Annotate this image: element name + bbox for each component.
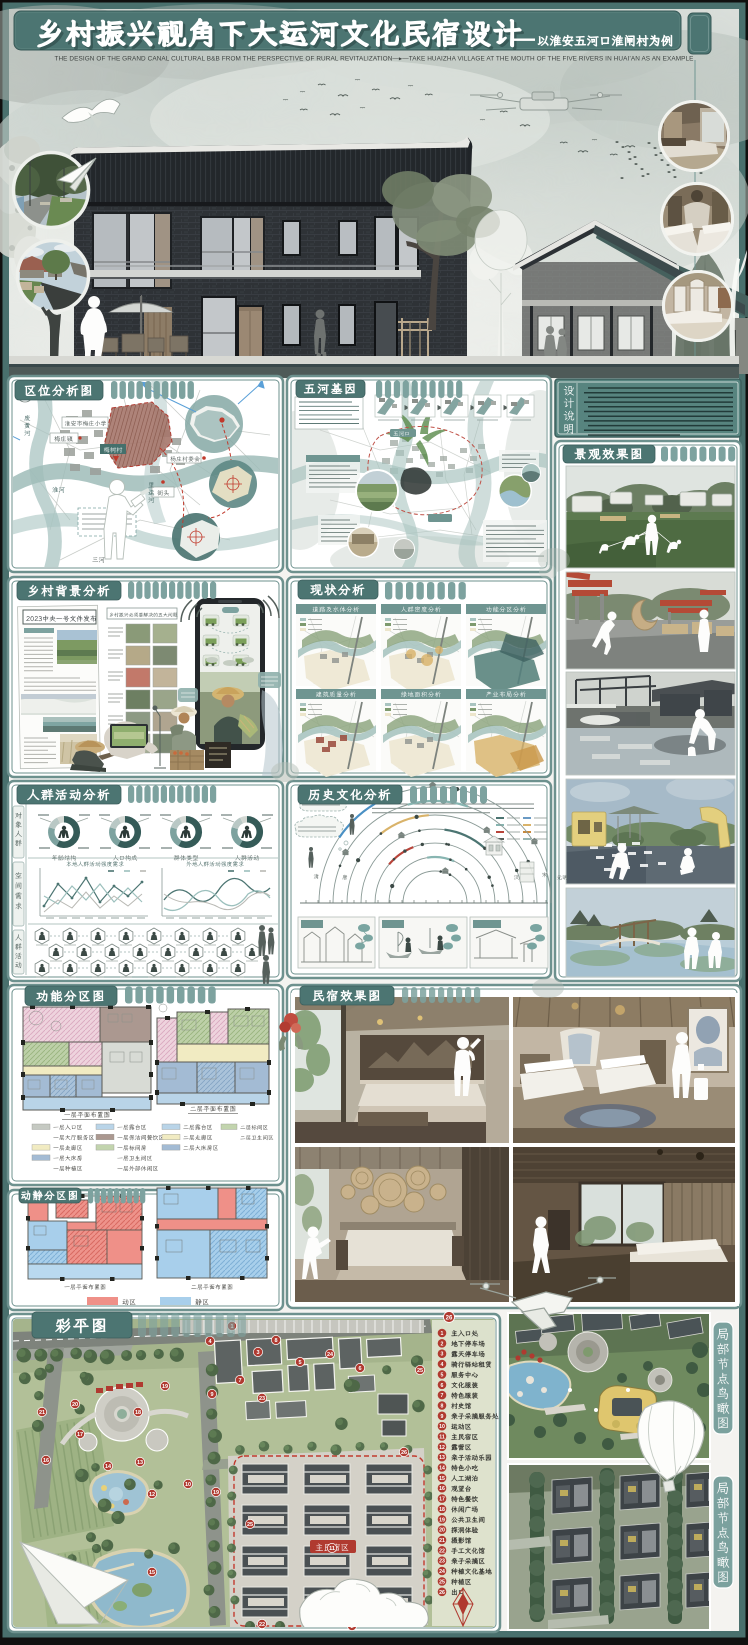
svg-text:24: 24: [327, 1352, 334, 1358]
svg-text:5: 5: [298, 1360, 301, 1366]
svg-text:13: 13: [439, 1455, 445, 1461]
svg-text:18: 18: [135, 1410, 141, 1416]
svg-text:10: 10: [185, 1482, 191, 1488]
svg-text:16: 16: [439, 1486, 445, 1492]
svg-text:14: 14: [439, 1466, 445, 1472]
svg-text:6: 6: [441, 1383, 444, 1389]
svg-text:16: 16: [43, 1458, 49, 1464]
svg-text:25: 25: [439, 1579, 445, 1585]
svg-text:17: 17: [77, 1432, 83, 1438]
svg-text:18: 18: [439, 1507, 445, 1513]
svg-text:8: 8: [441, 1404, 444, 1410]
svg-text:8: 8: [274, 1338, 277, 1344]
svg-text:22: 22: [439, 1548, 445, 1554]
svg-text:25: 25: [417, 1368, 423, 1374]
svg-text:23: 23: [259, 1396, 265, 1402]
svg-text:10: 10: [439, 1424, 445, 1430]
svg-text:23: 23: [439, 1559, 445, 1565]
svg-text:26: 26: [439, 1590, 445, 1596]
svg-text:20: 20: [439, 1528, 445, 1534]
svg-text:26: 26: [401, 1450, 407, 1456]
svg-text:9: 9: [441, 1414, 444, 1420]
svg-text:19: 19: [162, 1384, 168, 1390]
svg-text:12: 12: [439, 1445, 445, 1451]
svg-text:24: 24: [439, 1569, 445, 1575]
svg-text:13: 13: [137, 1460, 143, 1466]
svg-text:5: 5: [441, 1372, 444, 1378]
svg-text:22: 22: [259, 1622, 265, 1628]
svg-text:21: 21: [39, 1410, 45, 1416]
svg-text:3: 3: [256, 1350, 259, 1356]
svg-text:2: 2: [441, 1341, 444, 1347]
svg-text:14: 14: [105, 1464, 112, 1470]
svg-text:4: 4: [441, 1362, 444, 1368]
svg-text:6: 6: [358, 1366, 361, 1372]
svg-text:20: 20: [72, 1402, 78, 1408]
svg-text:9: 9: [210, 1392, 213, 1398]
svg-text:12: 12: [149, 1492, 155, 1498]
svg-text:21: 21: [439, 1538, 445, 1544]
svg-text:15: 15: [149, 1570, 155, 1576]
svg-text:THE DESIGN OF THE GRAND CANAL: THE DESIGN OF THE GRAND CANAL CULTURAL B…: [54, 56, 693, 63]
svg-text:26: 26: [446, 1316, 453, 1322]
svg-text:15: 15: [439, 1476, 445, 1482]
svg-text:19: 19: [439, 1517, 445, 1523]
svg-text:7: 7: [441, 1393, 444, 1399]
svg-text:11: 11: [329, 1546, 335, 1552]
svg-text:11: 11: [439, 1435, 445, 1441]
svg-text:7: 7: [238, 1378, 241, 1384]
svg-text:1: 1: [441, 1331, 444, 1337]
svg-text:3: 3: [441, 1352, 444, 1358]
svg-text:19: 19: [213, 1490, 219, 1496]
svg-text:17: 17: [439, 1497, 445, 1503]
svg-text:25: 25: [247, 1522, 253, 1528]
